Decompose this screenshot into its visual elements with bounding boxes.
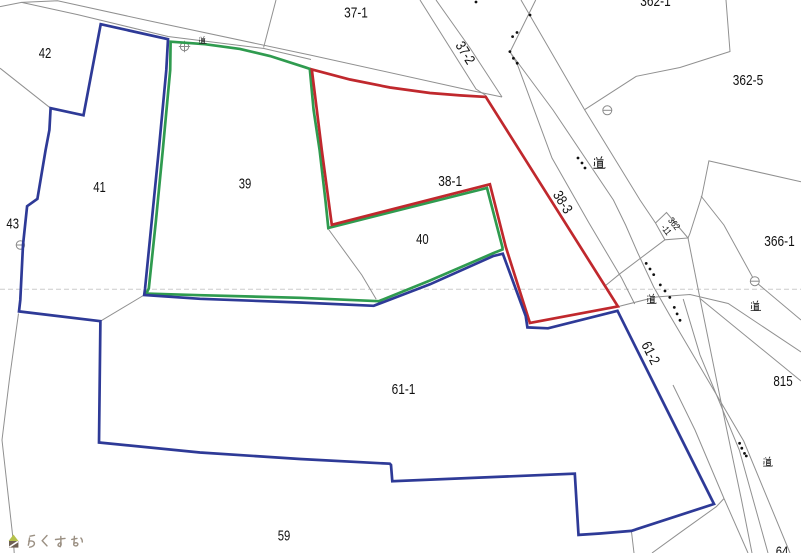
svg-text:64: 64 [776,543,789,553]
svg-text:42: 42 [39,45,52,62]
svg-text:41: 41 [93,179,106,196]
svg-text:37-1: 37-1 [344,4,368,20]
svg-text:815: 815 [773,373,792,390]
svg-text:59: 59 [278,527,291,544]
svg-text:43: 43 [6,215,19,232]
svg-text:39: 39 [239,175,252,192]
svg-text:366-1: 366-1 [764,233,794,249]
svg-text:38-1: 38-1 [438,173,462,189]
svg-text:61-1: 61-1 [392,381,416,397]
svg-text:362-1: 362-1 [640,0,670,9]
svg-text:40: 40 [416,231,429,248]
svg-text:362-5: 362-5 [733,72,763,88]
